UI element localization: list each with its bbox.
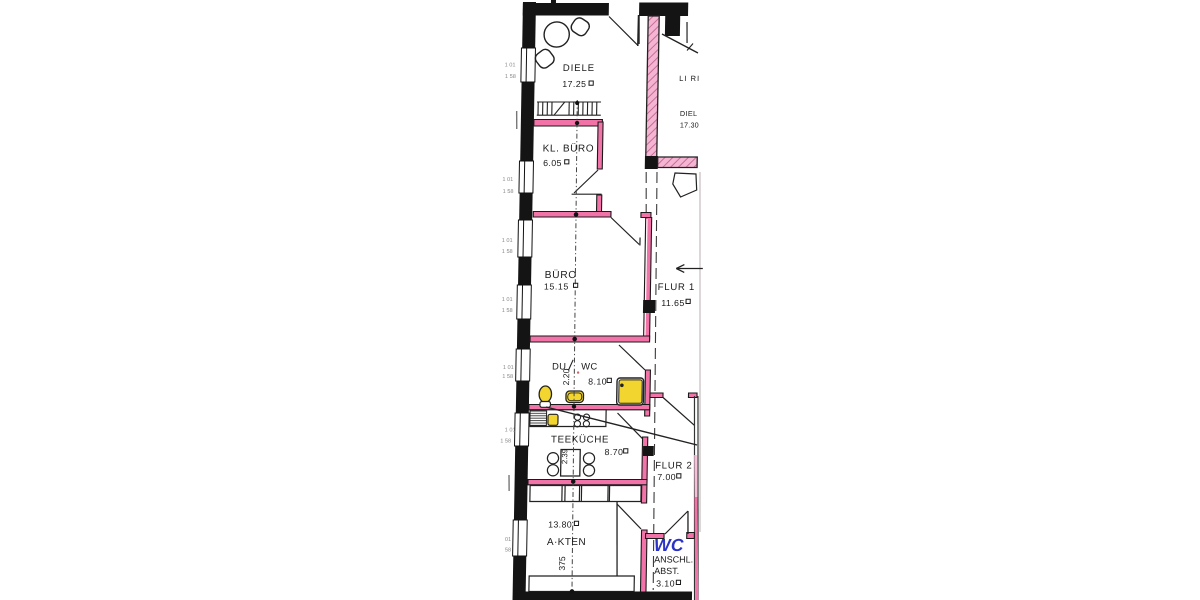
svg-text:DIEL: DIEL [680,109,698,118]
svg-text:KL. BÜRO: KL. BÜRO [543,143,595,155]
svg-text:1 58: 1 58 [505,74,516,80]
svg-text:WC: WC [654,535,684,555]
svg-text:WC: WC [581,360,598,371]
svg-text:1 01: 1 01 [505,428,516,434]
svg-text:FLUR 2: FLUR 2 [655,461,692,472]
svg-text:1 01: 1 01 [502,238,513,244]
svg-text:15.15: 15.15 [544,282,569,292]
svg-text:1 58: 1 58 [503,189,514,195]
svg-text:13.80: 13.80 [548,519,572,529]
svg-text:1 01: 1 01 [505,63,516,69]
svg-text:58: 58 [505,548,511,554]
svg-text:1 58: 1 58 [500,438,511,444]
svg-text:FLUR 1: FLUR 1 [658,282,695,293]
svg-text:7.00: 7.00 [657,472,676,482]
svg-text:TEEKÜCHE: TEEKÜCHE [551,435,609,446]
svg-text:LI RI: LI RI [679,74,700,83]
svg-text:17.30: 17.30 [680,121,699,130]
svg-text:A·KTEN: A·KTEN [547,537,586,548]
svg-text:BÜRO: BÜRO [545,269,577,281]
svg-text:6.05: 6.05 [543,158,562,168]
svg-text:1 58: 1 58 [502,308,513,314]
svg-text:1 01: 1 01 [502,297,513,303]
svg-text:1 58: 1 58 [502,374,513,380]
svg-text:1 01: 1 01 [502,177,513,183]
svg-text:8.10: 8.10 [588,376,607,386]
svg-text:375: 375 [557,556,567,571]
svg-text:8.70: 8.70 [605,447,624,457]
svg-text:ANSCHL.: ANSCHL. [654,555,693,565]
svg-text:ABST.: ABST. [654,566,679,576]
svg-text:1 58: 1 58 [502,249,513,255]
svg-text:2.20: 2.20 [561,368,571,385]
svg-text:01: 01 [505,537,511,543]
svg-text:17.25: 17.25 [562,79,586,89]
svg-text:3.10: 3.10 [656,578,675,588]
svg-text:1 01: 1 01 [503,365,514,371]
svg-text:2.39: 2.39 [560,449,569,464]
svg-text:11.65: 11.65 [661,298,685,308]
svg-text:DIELE: DIELE [563,63,595,74]
